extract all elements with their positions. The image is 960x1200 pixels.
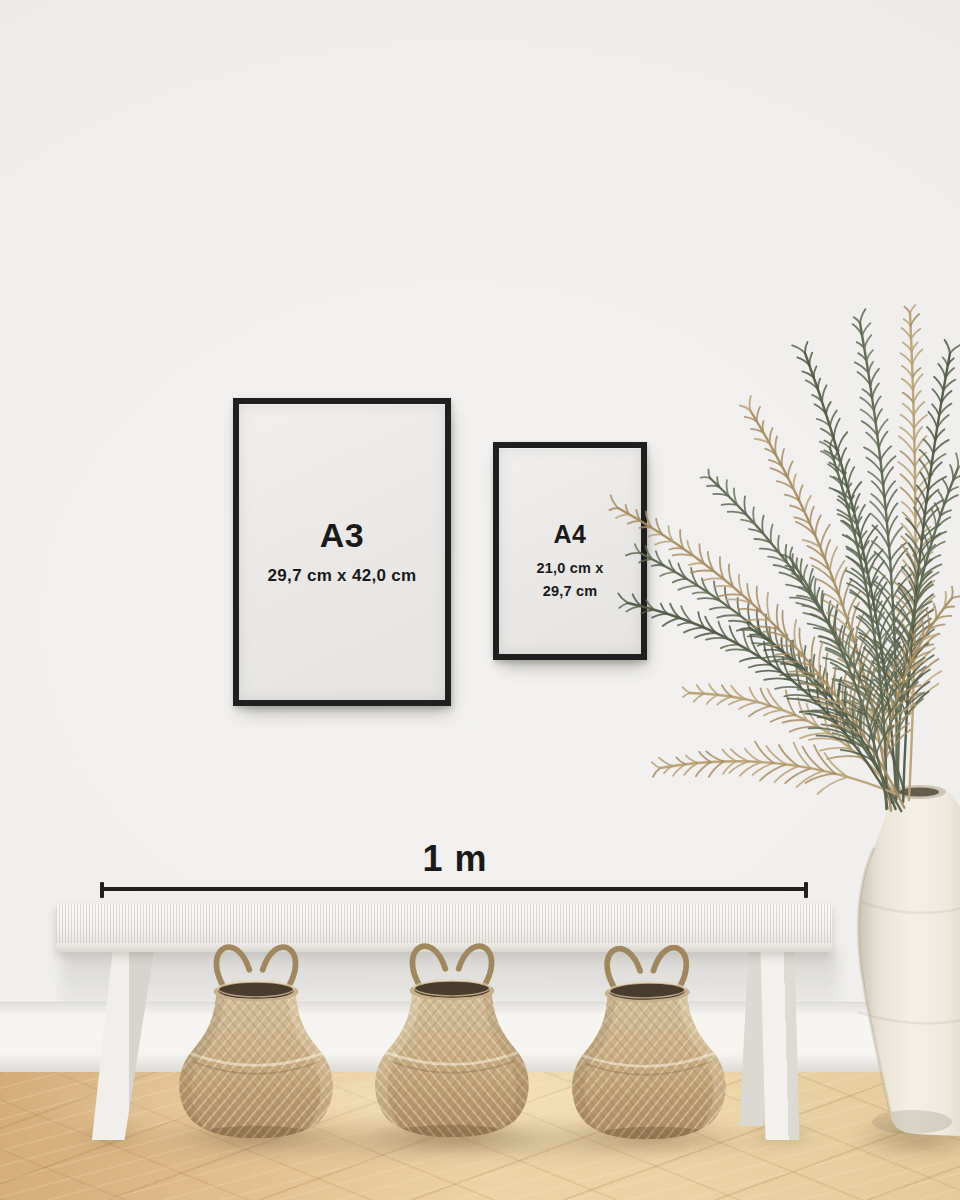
frame-a4-dimensions-line1: 21,0 cm x [536,560,603,576]
measure-label: 1 m [102,838,808,880]
measure-cap-right [804,882,808,898]
frame-a3-dimensions: 29,7 cm x 42,0 cm [268,566,417,586]
palm-plant [600,298,960,828]
frame-a3-size-label: A3 [320,518,364,552]
frame-a3-paper: A3 29,7 cm x 42,0 cm [239,404,445,700]
measure-line [102,887,808,891]
size-guide-scene: A3 29,7 cm x 42,0 cm A4 21,0 cm x 29,7 c… [0,0,960,1200]
bench-leg-right [761,950,800,1140]
frame-a4-dimensions: 21,0 cm x 29,7 cm [536,557,603,602]
basket-1 [166,934,346,1140]
frame-a3: A3 29,7 cm x 42,0 cm [233,398,451,706]
basket-2 [362,933,542,1139]
frame-a4-size-label: A4 [554,522,587,547]
basket-3 [556,933,740,1142]
frame-a4-dimensions-line2: 29,7 cm [543,583,598,599]
measure-cap-left [100,882,104,898]
vase [852,782,960,1138]
